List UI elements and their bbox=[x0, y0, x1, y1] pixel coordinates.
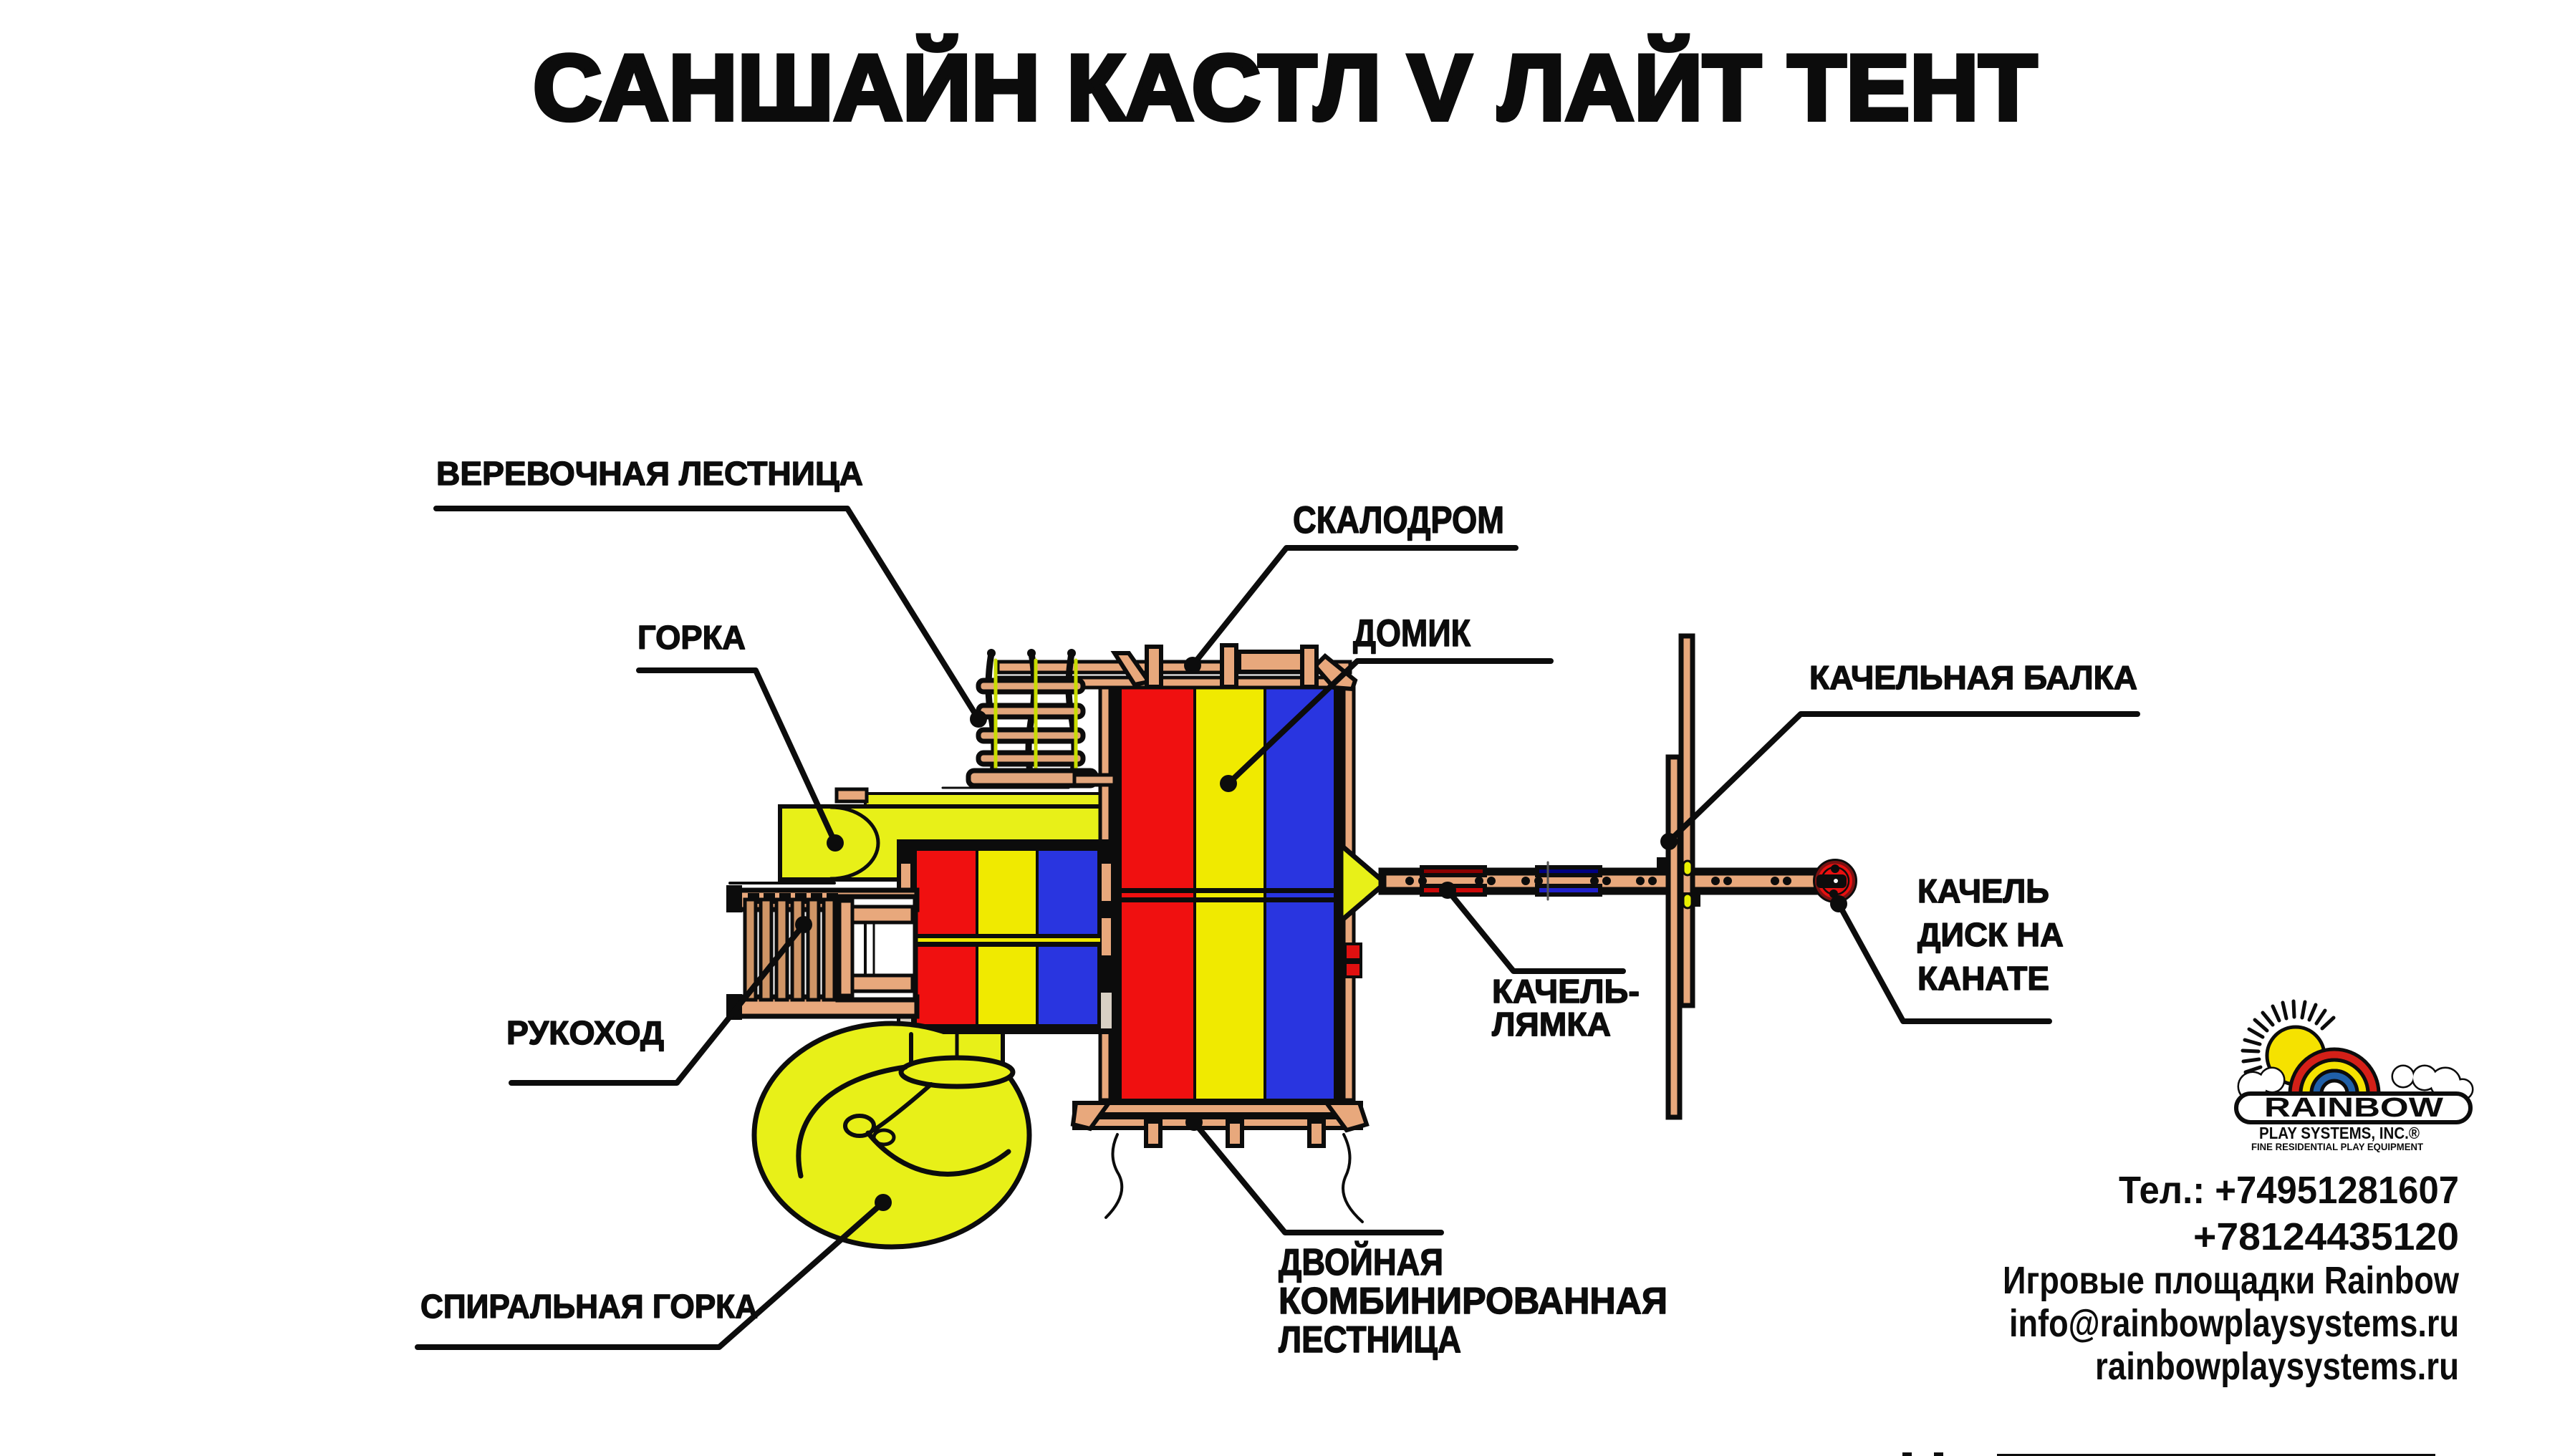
svg-text:ДВОЙНАЯ: ДВОЙНАЯ bbox=[1279, 1241, 1443, 1283]
svg-text:СПИРАЛЬНАЯ ГОРКА: СПИРАЛЬНАЯ ГОРКА bbox=[420, 1288, 758, 1325]
svg-text:ГОРКА: ГОРКА bbox=[637, 619, 746, 656]
svg-text:FINE RESIDENTIAL PLAY EQUIPMEN: FINE RESIDENTIAL PLAY EQUIPMENT bbox=[2251, 1141, 2423, 1152]
svg-text:ВЕРЕВОЧНАЯ ЛЕСТНИЦА: ВЕРЕВОЧНАЯ ЛЕСТНИЦА bbox=[436, 455, 863, 492]
svg-text:ЛЕСТНИЦА: ЛЕСТНИЦА bbox=[1279, 1319, 1461, 1361]
svg-text:rainbowplaysystems.ru: rainbowplaysystems.ru bbox=[2095, 1345, 2459, 1388]
svg-text:САНШАЙН КАСТЛ V ЛАЙТ ТЕНТ: САНШАЙН КАСТЛ V ЛАЙТ ТЕНТ bbox=[533, 35, 2037, 140]
svg-text:RAINBOW: RAINBOW bbox=[2264, 1093, 2443, 1123]
svg-text:PLAY SYSTEMS, INC.®: PLAY SYSTEMS, INC.® bbox=[2259, 1124, 2420, 1142]
svg-text:КАЧЕЛЬ: КАЧЕЛЬ bbox=[1917, 872, 2049, 910]
svg-text:Тел.: +74951281607: Тел.: +74951281607 bbox=[2119, 1169, 2459, 1212]
svg-text:info@rainbowplaysystems.ru: info@rainbowplaysystems.ru bbox=[2009, 1302, 2459, 1345]
svg-text:+78124435120: +78124435120 bbox=[2193, 1215, 2459, 1258]
svg-text:ДОМИК: ДОМИК bbox=[1353, 612, 1471, 655]
svg-text:ДИСК НА: ДИСК НА bbox=[1917, 916, 2064, 953]
svg-text:РУКОХОД: РУКОХОД bbox=[506, 1014, 664, 1051]
svg-text:КАНАТЕ: КАНАТЕ bbox=[1917, 960, 2049, 997]
svg-text:Игровые площадки Rainbow: Игровые площадки Rainbow bbox=[2003, 1259, 2460, 1302]
svg-text:КАЧЕЛЬ-: КАЧЕЛЬ- bbox=[1492, 973, 1640, 1010]
svg-text:КОМБИНИРОВАННАЯ: КОМБИНИРОВАННАЯ bbox=[1279, 1281, 1667, 1322]
svg-text:КАЧЕЛЬНАЯ БАЛКА: КАЧЕЛЬНАЯ БАЛКА bbox=[1809, 659, 2137, 696]
svg-text:ЛЯМКА: ЛЯМКА bbox=[1492, 1006, 1611, 1043]
svg-text:СКАЛОДРОМ: СКАЛОДРОМ bbox=[1293, 499, 1504, 541]
